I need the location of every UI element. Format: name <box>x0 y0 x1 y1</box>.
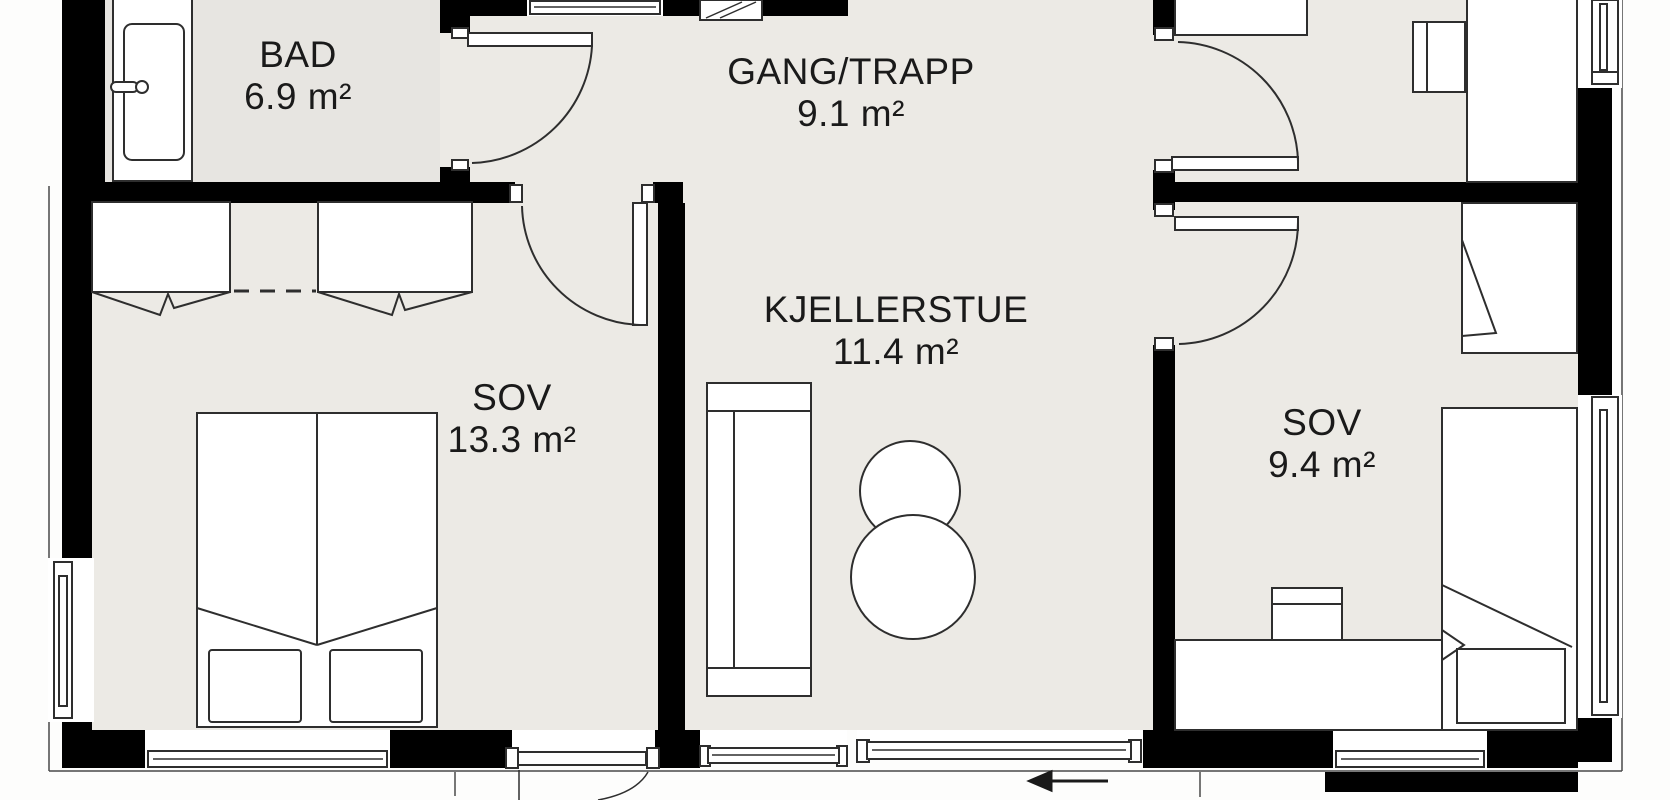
room-label-sov-9: SOV 9.4 m² <box>1268 402 1376 486</box>
sov9-chair <box>1272 588 1342 640</box>
room-name: KJELLERSTUE <box>764 289 1029 330</box>
room-label-sov-13: SOV 13.3 m² <box>448 377 577 461</box>
upper-room-bed <box>1467 0 1577 182</box>
room-label-kjellerstue: KJELLERSTUE 11.4 m² <box>764 289 1029 373</box>
room-area: 9.1 m² <box>727 93 975 135</box>
window-bottom-kjellerstue <box>700 730 847 766</box>
floorplan-basement: BAD 6.9 m² GANG/TRAPP 9.1 m² KJELLERSTUE… <box>0 0 1670 800</box>
window-left <box>48 558 94 722</box>
room-area: 9.4 m² <box>1268 444 1376 486</box>
exterior-door-sov13 <box>506 730 659 800</box>
window-bottom-sov9 <box>1333 730 1487 767</box>
sliding-door-kjellerstue <box>857 730 1143 762</box>
room-name: GANG/TRAPP <box>727 51 975 92</box>
chimney-flue <box>700 0 762 20</box>
sliding-direction-arrow <box>1030 772 1108 790</box>
bathtub <box>111 0 192 181</box>
double-bed <box>197 413 437 727</box>
room-name: SOV <box>472 377 552 418</box>
room-label-gang-trapp: GANG/TRAPP 9.1 m² <box>727 51 975 135</box>
sofa <box>707 383 811 696</box>
room-area: 13.3 m² <box>448 419 577 461</box>
sov9-wardrobe <box>1462 203 1577 353</box>
room-name: BAD <box>259 34 337 75</box>
room-name: SOV <box>1282 402 1362 443</box>
window-right-upper <box>1578 0 1622 88</box>
room-area: 11.4 m² <box>764 331 1029 373</box>
upper-room-chair <box>1413 22 1465 92</box>
window-right-lower <box>1578 395 1622 718</box>
window-bottom-sov13 <box>145 730 390 767</box>
window-top <box>527 0 663 16</box>
sov9-desk <box>1175 640 1442 730</box>
round-table-large <box>851 515 975 639</box>
room-label-bad: BAD 6.9 m² <box>244 34 352 118</box>
room-area: 6.9 m² <box>244 76 352 118</box>
annotation-marks <box>455 772 1200 797</box>
sov9-bed <box>1442 408 1577 730</box>
upper-room-desk <box>1175 0 1307 35</box>
